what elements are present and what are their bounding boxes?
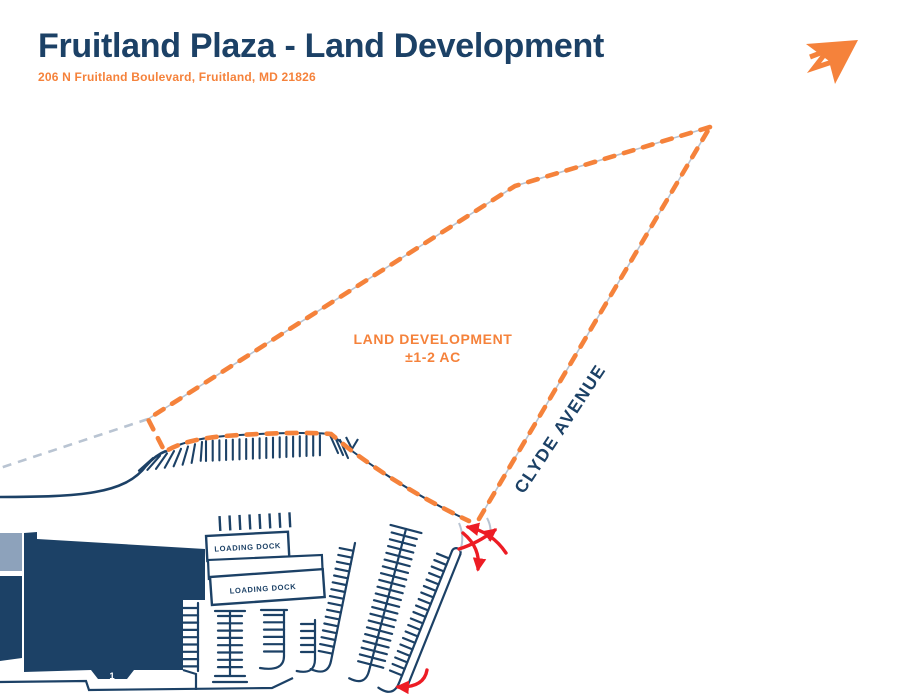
- building-number-label: 1: [109, 671, 115, 682]
- parcel-label: LAND DEVELOPMENT ±1-2 AC: [354, 331, 513, 365]
- development-boundary-dashed: [148, 127, 710, 521]
- sidewalk-outline: [0, 678, 293, 690]
- building-annex: [0, 533, 22, 571]
- parcel-label-line1: LAND DEVELOPMENT: [354, 331, 513, 347]
- sidewalk-step: [183, 670, 196, 690]
- site-plan-page: Fruitland Plaza - Land Development 206 N…: [0, 0, 900, 695]
- loading-dock-door-ticks: [220, 512, 291, 531]
- curb-under-boundary: [165, 433, 469, 521]
- parcel-label-line2: ±1-2 AC: [405, 349, 461, 365]
- arrow-turn-down: [463, 533, 478, 569]
- building-left-wing: [0, 576, 22, 661]
- road-curb-line: [0, 451, 166, 497]
- boundary-parking-hatch: [139, 435, 348, 471]
- arrow-turn-in-left: [468, 527, 506, 553]
- building-footprint: [24, 532, 205, 679]
- site-plan-drawing: 1 LOADING DOCK LOADING DOCK: [0, 0, 900, 695]
- parcel-extension-dashed: [0, 419, 148, 468]
